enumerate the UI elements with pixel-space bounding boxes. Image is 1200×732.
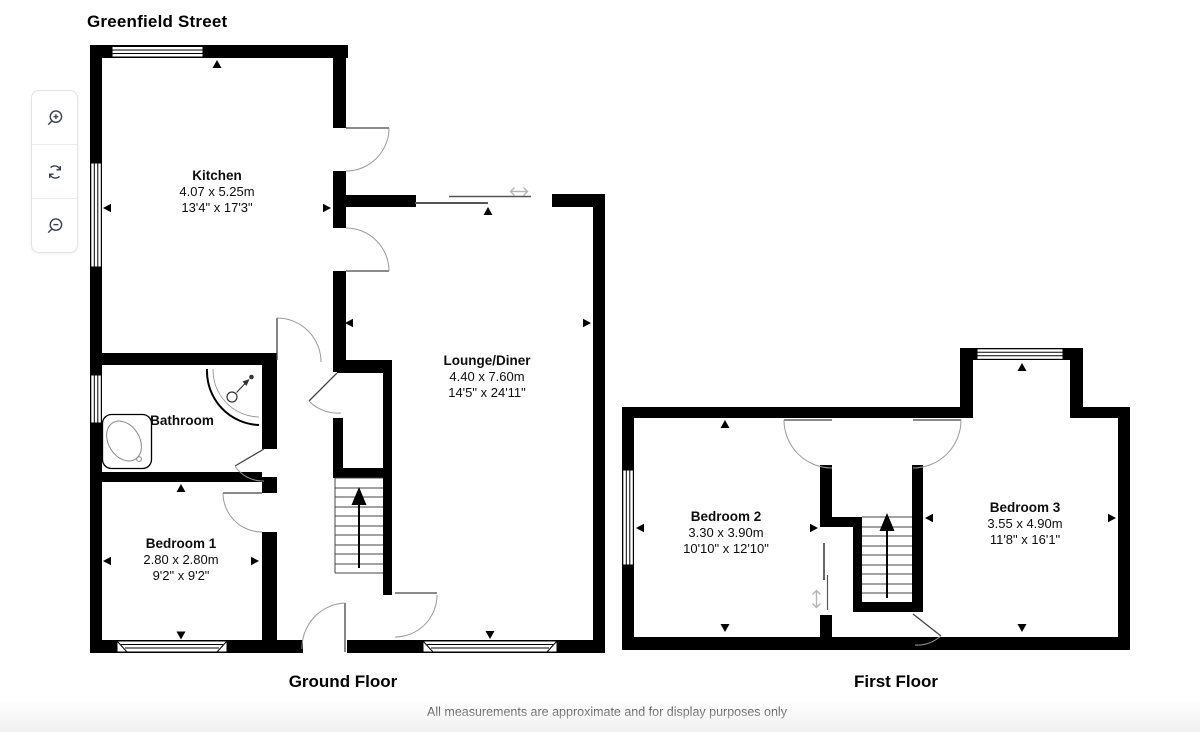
landing-sliding-door — [813, 543, 828, 610]
room-size-metric: 4.07 x 5.25m — [179, 184, 254, 200]
sliding-door — [415, 188, 531, 204]
first-floor-measure-arrows — [636, 363, 1116, 632]
bathroom-left-window — [91, 375, 102, 423]
room-label-lounge-diner: Lounge/Diner 4.40 x 7.60m 14'5" x 24'11" — [444, 353, 531, 401]
room-size-imperial: 10'10" x 12'10" — [683, 541, 769, 557]
room-name: Bathroom — [150, 413, 214, 429]
room-size-metric: 4.40 x 7.60m — [444, 369, 531, 385]
room-size-imperial: 9'2" x 9'2" — [143, 568, 218, 584]
bedroom2-left-window — [623, 470, 634, 565]
room-label-kitchen: Kitchen 4.07 x 5.25m 13'4" x 17'3" — [179, 168, 254, 216]
lounge-bottom-window — [423, 641, 557, 652]
slide-arrow-vertical-icon — [813, 591, 821, 608]
floor-label-ground: Ground Floor — [289, 672, 398, 692]
front-door-opening — [303, 639, 347, 654]
room-size-metric: 3.55 x 4.90m — [987, 516, 1062, 532]
floorplan-viewer: Greenfield Street — [0, 0, 1200, 732]
first-floor-stairs — [862, 513, 912, 598]
room-name: Bedroom 1 — [143, 536, 218, 552]
slide-arrow-icon — [511, 188, 528, 196]
first-floor-walls — [622, 348, 1130, 650]
shower-icon — [207, 369, 259, 425]
ground-floor-stairs — [335, 478, 383, 573]
bedroom1-bottom-window — [117, 641, 227, 652]
room-size-imperial: 13'4" x 17'3" — [179, 200, 254, 216]
stairs-up-arrow-icon — [352, 487, 367, 568]
dormer-window — [977, 349, 1063, 360]
kitchen-left-window — [91, 163, 102, 267]
room-name: Bedroom 2 — [683, 509, 769, 525]
floorplan-drawing — [0, 0, 1200, 732]
room-name: Lounge/Diner — [444, 353, 531, 369]
room-label-bathroom: Bathroom — [150, 413, 214, 429]
floor-label-first: First Floor — [854, 672, 938, 692]
first-floor-plan — [622, 348, 1130, 650]
room-size-metric: 3.30 x 3.90m — [683, 525, 769, 541]
room-size-imperial: 14'5" x 24'11" — [444, 385, 531, 401]
bath-icon — [99, 415, 151, 469]
room-label-bedroom-2: Bedroom 2 3.30 x 3.90m 10'10" x 12'10" — [683, 509, 769, 557]
room-name: Bedroom 3 — [987, 500, 1062, 516]
room-label-bedroom-3: Bedroom 3 3.55 x 4.90m 11'8" x 16'1" — [987, 500, 1062, 548]
room-size-imperial: 11'8" x 16'1" — [987, 532, 1062, 548]
kitchen-top-window — [112, 47, 203, 58]
room-label-bedroom-1: Bedroom 1 2.80 x 2.80m 9'2" x 9'2" — [143, 536, 218, 584]
disclaimer-text: All measurements are approximate and for… — [427, 705, 787, 719]
room-size-metric: 2.80 x 2.80m — [143, 552, 218, 568]
room-name: Kitchen — [179, 168, 254, 184]
